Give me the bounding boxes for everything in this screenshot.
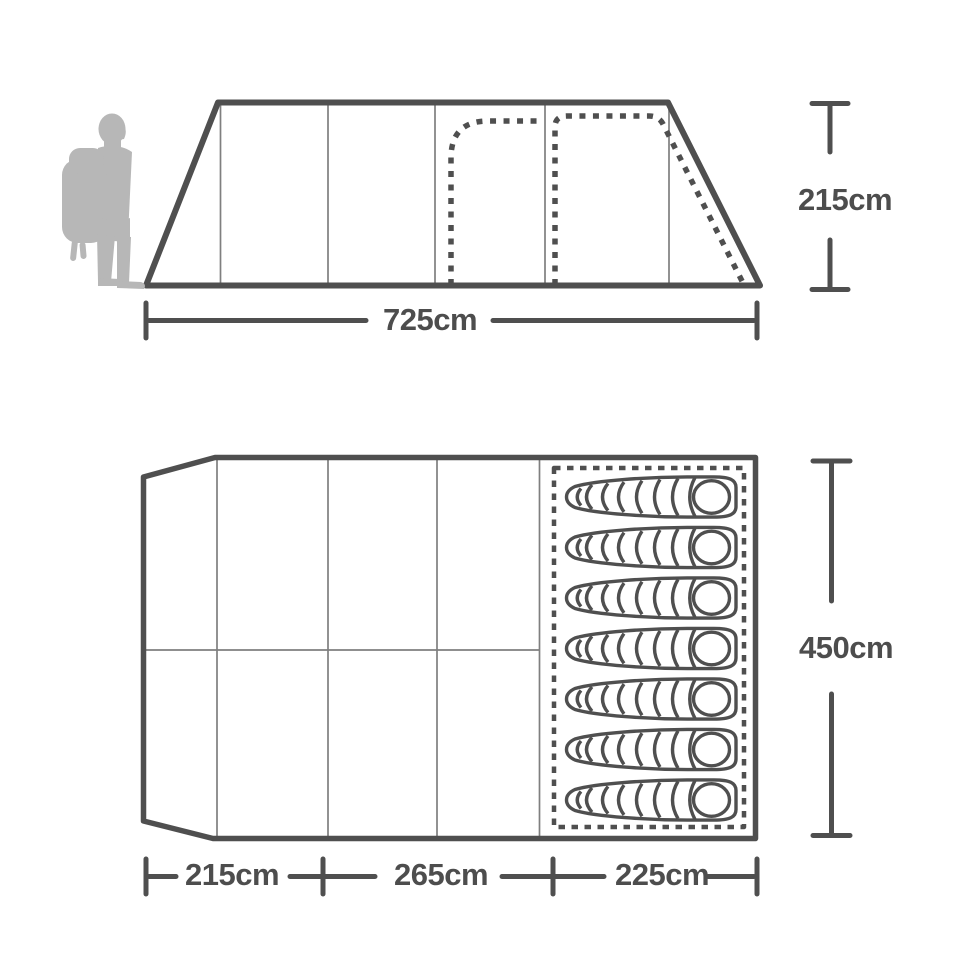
sleeping-bag-icon xyxy=(567,628,737,668)
side-view xyxy=(146,103,760,286)
sleeping-bag-icon xyxy=(567,527,737,567)
hiker-silhouette-icon xyxy=(62,114,145,290)
side-view-door-outline xyxy=(451,121,543,285)
side-view-tent-outline xyxy=(146,103,760,286)
floor-plan xyxy=(144,458,756,839)
diagram-artwork xyxy=(0,0,960,960)
sleeping-bag-icon xyxy=(567,679,737,719)
side-height-label: 215cm xyxy=(798,182,892,218)
sleeping-area-outline xyxy=(554,468,744,827)
sleeping-bag-icon xyxy=(567,477,737,517)
side-width-label: 725cm xyxy=(383,302,477,338)
plan-section-2-label: 265cm xyxy=(394,857,488,893)
sleeping-bag-icon xyxy=(567,729,737,769)
sleeping-bag-icon xyxy=(567,578,737,618)
plan-section-1-label: 215cm xyxy=(185,857,279,893)
floor-plan-divider-lines xyxy=(146,458,540,836)
sleeping-bags xyxy=(567,477,737,820)
sleeping-bag-icon xyxy=(567,780,737,820)
plan-section-3-label: 225cm xyxy=(615,857,709,893)
tent-dimensions-diagram: 725cm 215cm 450cm 215cm 265cm 225cm xyxy=(0,0,960,960)
side-view-pole-lines xyxy=(221,105,670,285)
plan-depth-label: 450cm xyxy=(799,630,893,666)
